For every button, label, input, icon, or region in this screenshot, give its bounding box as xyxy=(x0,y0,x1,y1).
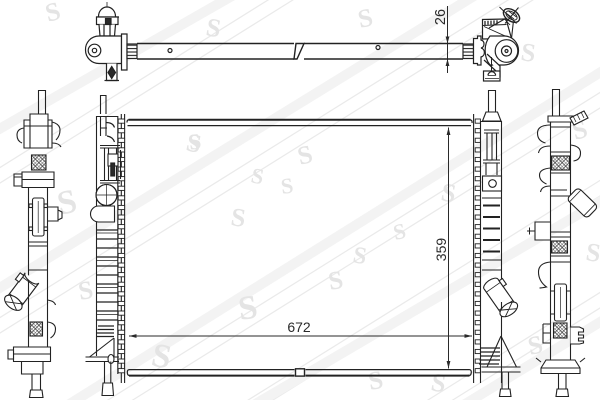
svg-text:359: 359 xyxy=(433,238,449,262)
svg-text:672: 672 xyxy=(287,319,311,335)
svg-text:26: 26 xyxy=(433,9,449,25)
